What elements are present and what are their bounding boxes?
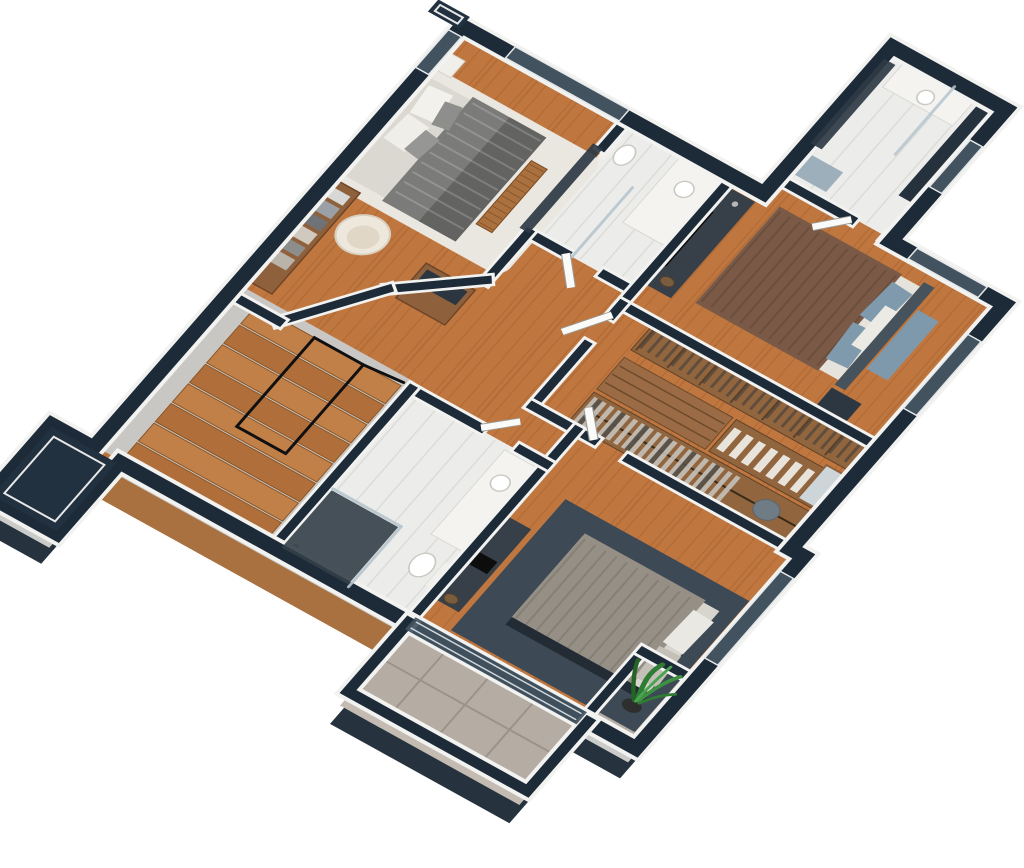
floorplan-3d-render <box>0 0 1024 868</box>
floorplan-stage <box>0 0 1024 868</box>
